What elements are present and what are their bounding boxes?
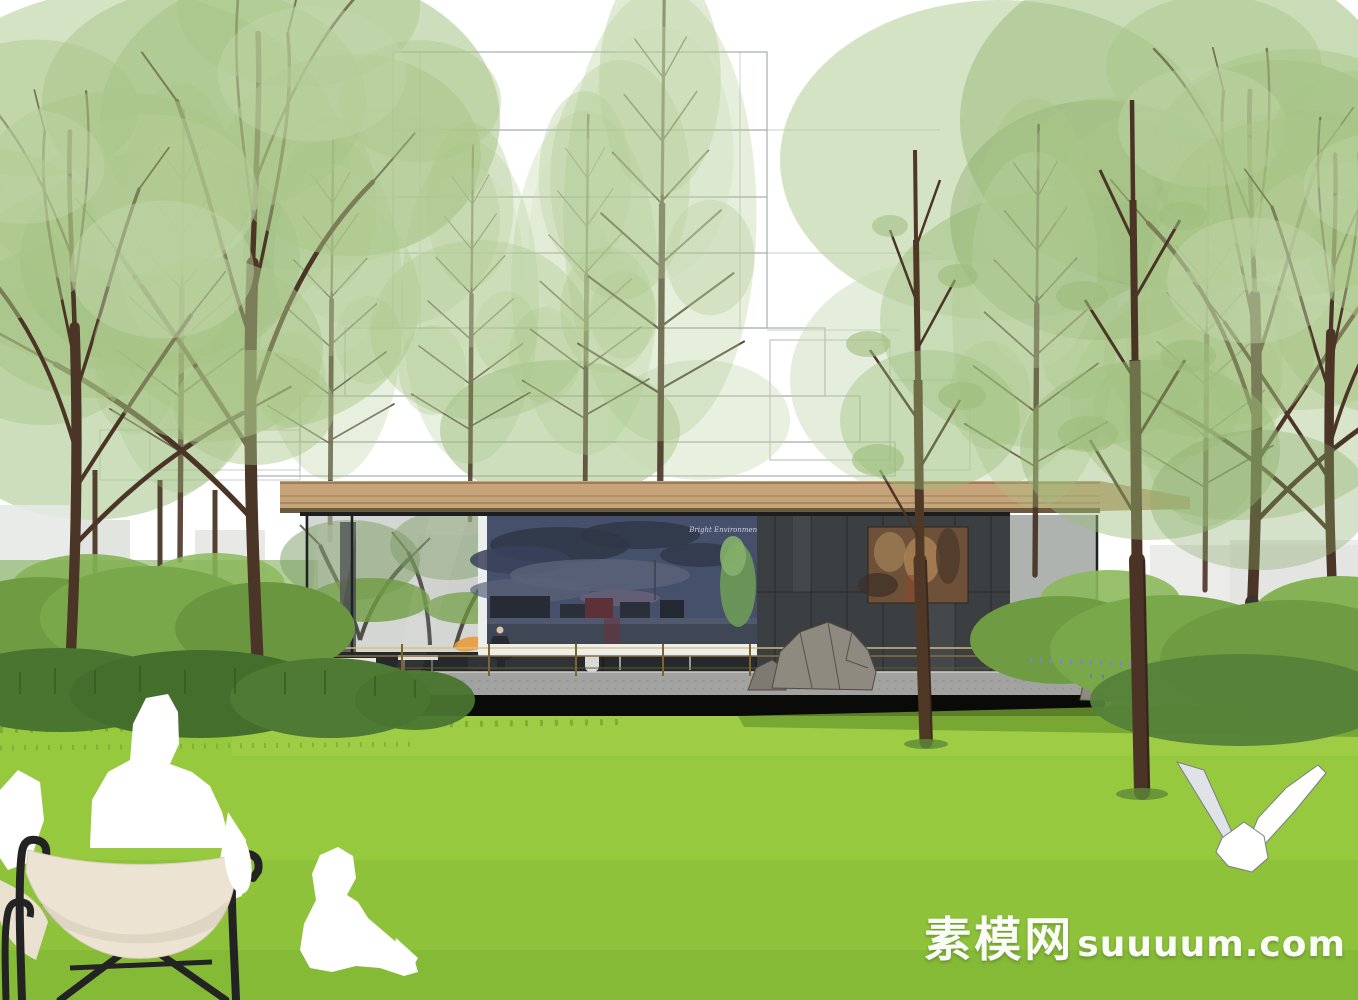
scene-svg: Bright Environment <box>0 0 1358 1000</box>
render-canvas: Bright Environment <box>0 0 1358 1000</box>
media-screen: Bright Environment <box>470 506 775 672</box>
watermark-latin-text: suuuum.com <box>1077 924 1346 965</box>
watermark-cjk-text: 素模网 <box>924 901 1074 970</box>
screen-caption: Bright Environment <box>688 526 760 534</box>
wall-artwork <box>858 527 968 603</box>
watermark: 素模网 suuuum.com <box>924 901 1346 970</box>
